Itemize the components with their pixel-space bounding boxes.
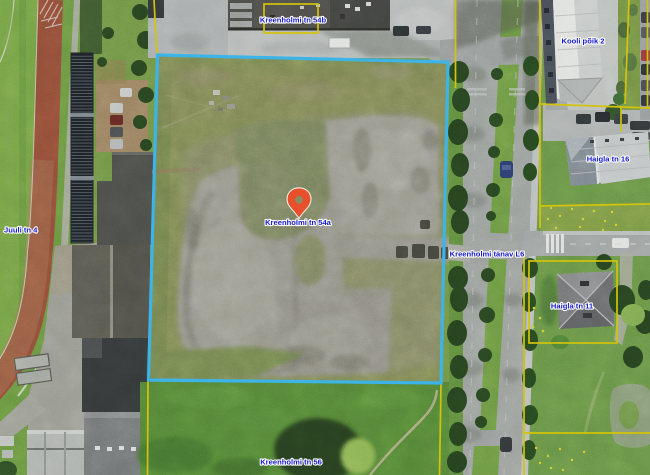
svg-text:Kreenholmi tänav L6: Kreenholmi tänav L6	[450, 250, 525, 259]
svg-text:Juuli tn 4: Juuli tn 4	[4, 226, 38, 235]
svg-text:Kooli põik 2: Kooli põik 2	[561, 37, 604, 46]
svg-text:Haigla tn 11: Haigla tn 11	[551, 302, 594, 311]
svg-text:Haigla tn 16: Haigla tn 16	[587, 155, 630, 164]
svg-text:Kreenholmi tn 54b: Kreenholmi tn 54b	[260, 16, 327, 25]
svg-text:Kreenholmi tn 56: Kreenholmi tn 56	[260, 458, 322, 467]
svg-text:Kreenholmi tn 54a: Kreenholmi tn 54a	[265, 218, 332, 227]
